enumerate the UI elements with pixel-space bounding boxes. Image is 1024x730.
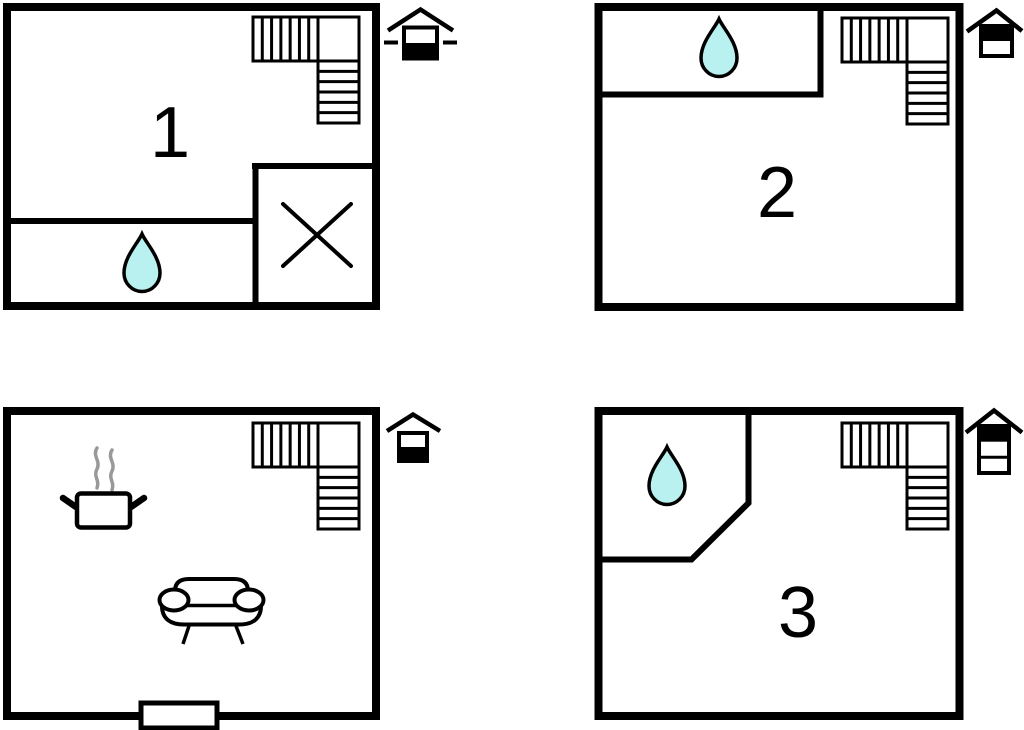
floor-level-icon-basement	[384, 10, 457, 59]
floor-plan-page: 1 2	[0, 0, 1024, 730]
floor-level-icon-first-floor	[967, 11, 1022, 57]
entrance-door	[141, 703, 217, 728]
floorplan-basement: 1	[3, 7, 457, 306]
highlighted-level	[399, 447, 427, 461]
sofa-armrest	[235, 590, 264, 611]
floor-level-icon-ground-floor	[387, 415, 440, 462]
floorplan-second-floor: 3	[597, 409, 1022, 716]
highlighted-level	[981, 26, 1012, 41]
highlighted-level	[979, 426, 1009, 442]
floor-plan-diagram: 1 2	[0, 0, 1024, 730]
roof	[387, 415, 440, 432]
room-number: 3	[778, 573, 818, 653]
floorplan-first-floor: 2	[599, 6, 1023, 307]
pot-body	[77, 494, 130, 528]
highlighted-level	[404, 43, 437, 59]
room-number: 2	[757, 153, 797, 233]
floorplan-ground-floor	[7, 411, 440, 728]
floor-level-icon-second-floor	[966, 411, 1022, 474]
room-number: 1	[150, 93, 190, 173]
sofa-armrest	[160, 590, 189, 611]
